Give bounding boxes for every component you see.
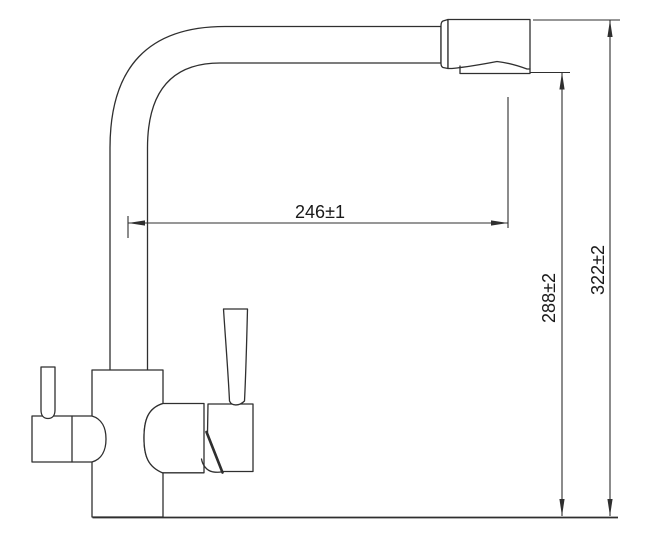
side-handle — [41, 367, 55, 419]
faucet-outline — [32, 20, 618, 518]
arrow-up — [607, 20, 612, 37]
spout-collar — [441, 20, 448, 69]
dimension-322: 322±2 — [533, 20, 620, 516]
valve-housing — [144, 404, 204, 474]
faucet-technical-drawing: 246±1 288±2 322±2 — [0, 0, 650, 549]
spout-pipe — [110, 27, 441, 376]
dimension-label-246: 246±1 — [295, 202, 345, 222]
arrow-up — [559, 73, 564, 90]
technical-drawing-canvas: 246±1 288±2 322±2 — [0, 0, 650, 549]
dimension-288: 288±2 — [530, 73, 570, 517]
spout-head — [448, 20, 530, 70]
lever-handle — [224, 309, 248, 405]
spout-aerator-lip — [460, 66, 530, 74]
arrow-right — [491, 220, 508, 225]
arrow-down — [607, 499, 612, 516]
dimension-label-322: 322±2 — [588, 245, 608, 295]
cartridge-housing — [208, 404, 254, 472]
side-handle-joint — [32, 416, 92, 462]
dimension-246: 246±1 — [128, 97, 508, 238]
arrow-down — [559, 499, 564, 516]
dimension-label-288: 288±2 — [539, 273, 559, 323]
